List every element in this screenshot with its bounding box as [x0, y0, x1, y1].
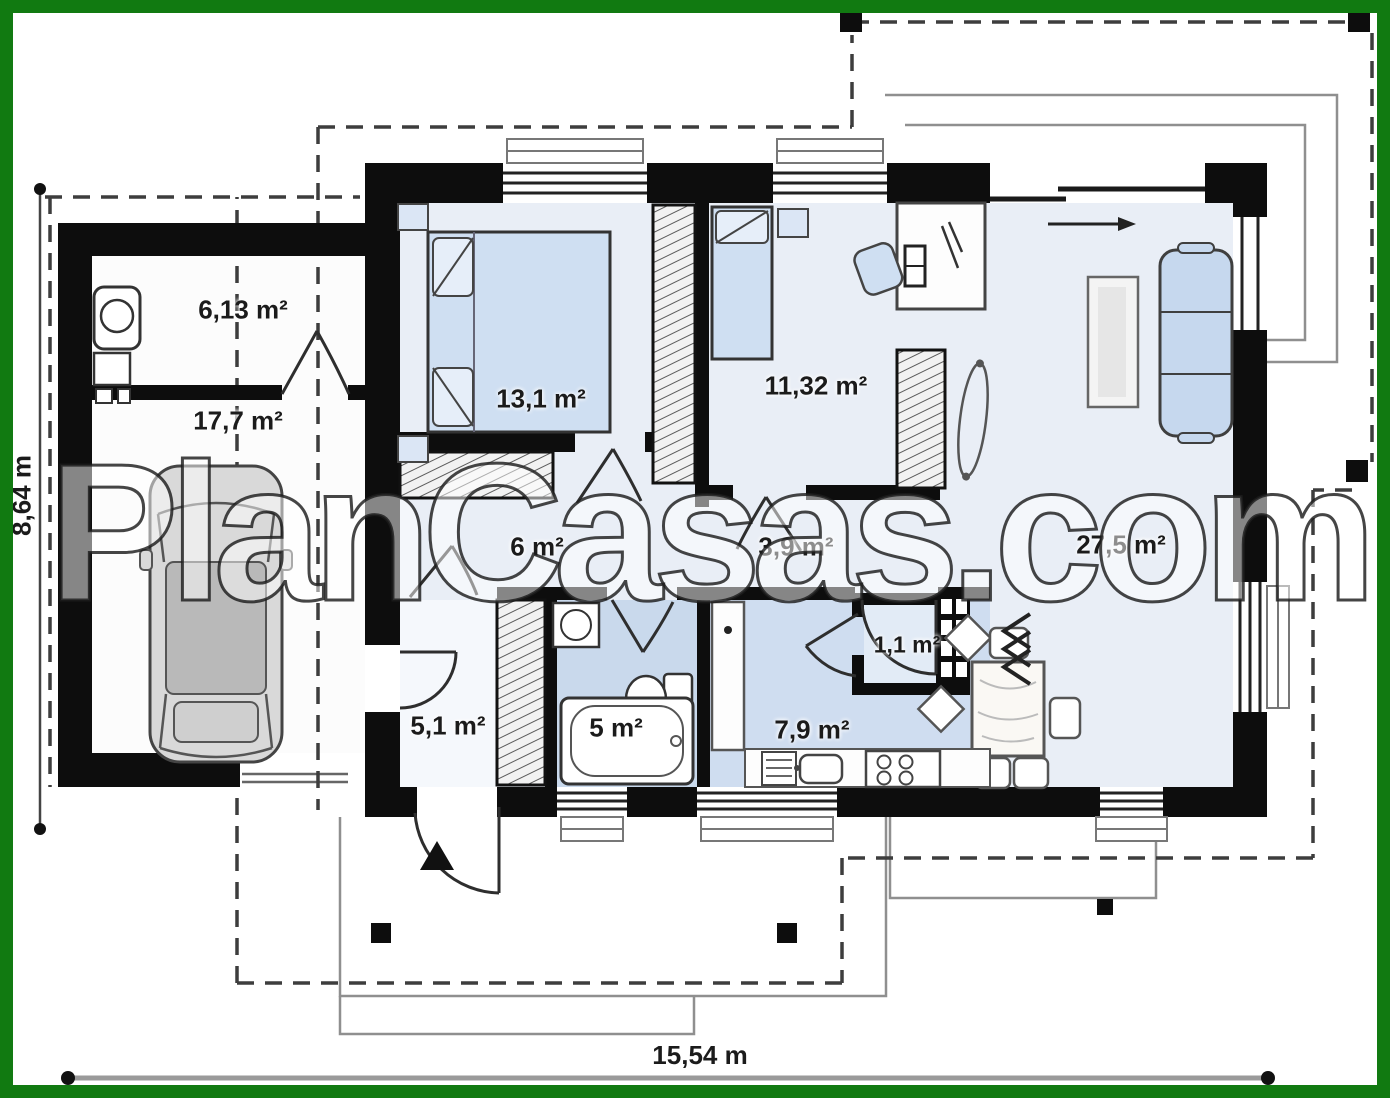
room-label-bedroom-1: 13,1 m²: [496, 384, 586, 415]
sofa-icon: [1160, 243, 1232, 443]
room-label-living: 27,5 m²: [1076, 530, 1166, 561]
kitchen-cabinet-icon: [712, 602, 744, 750]
coffee-table-icon: [1088, 277, 1138, 407]
room-label-entry: 5,1 m²: [410, 711, 485, 742]
double-bed-icon: [398, 204, 610, 462]
entry-wardrobe-icon: [497, 600, 545, 785]
bedroom2-wardrobe-icon: [897, 350, 945, 488]
room-label-hall: 6 m²: [510, 532, 563, 563]
width-dimension-label: 15,54 m: [600, 1040, 800, 1071]
room-label-kitchen: 7,9 m²: [774, 715, 849, 746]
car-icon: [140, 466, 292, 762]
room-label-storage: 6,13 m²: [198, 295, 288, 326]
desk-icon: [897, 203, 985, 309]
floorplan-drawing: [0, 0, 1390, 1098]
kitchen-sink-icon: [762, 752, 842, 785]
room-label-garage: 17,7 m²: [193, 406, 283, 437]
room-label-corridor: 3,9 m²: [758, 532, 833, 563]
height-dimension-label: 8,64 m: [7, 416, 38, 576]
washbasin-icon: [553, 603, 599, 647]
room-label-bedroom-2: 11,32 m²: [765, 371, 868, 402]
room-label-pantry: 1,1 m²: [874, 632, 940, 659]
room-label-bathroom: 5 m²: [589, 713, 642, 744]
stove-icon: [866, 751, 940, 787]
bedroom1-wardrobe-icon: [653, 205, 695, 483]
front-door: [415, 807, 499, 893]
